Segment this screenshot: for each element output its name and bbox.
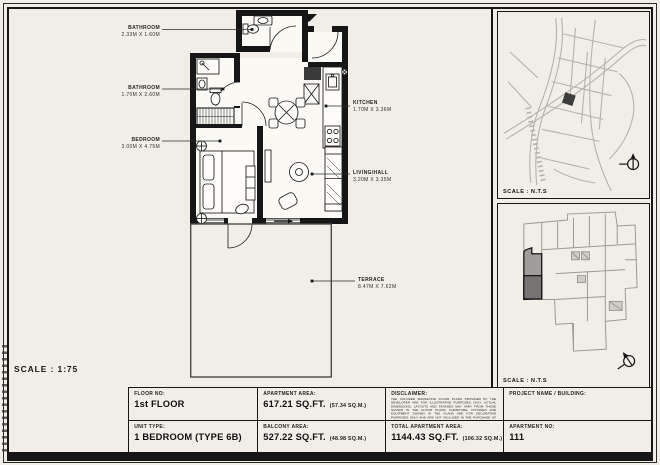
drawing-sheet: BATHROOM 2.33M X 1.60M BATHROOM 1.70M X …: [0, 0, 660, 465]
sheet-bottom-band: [7, 452, 653, 461]
sheet-border-inner: [7, 7, 653, 459]
